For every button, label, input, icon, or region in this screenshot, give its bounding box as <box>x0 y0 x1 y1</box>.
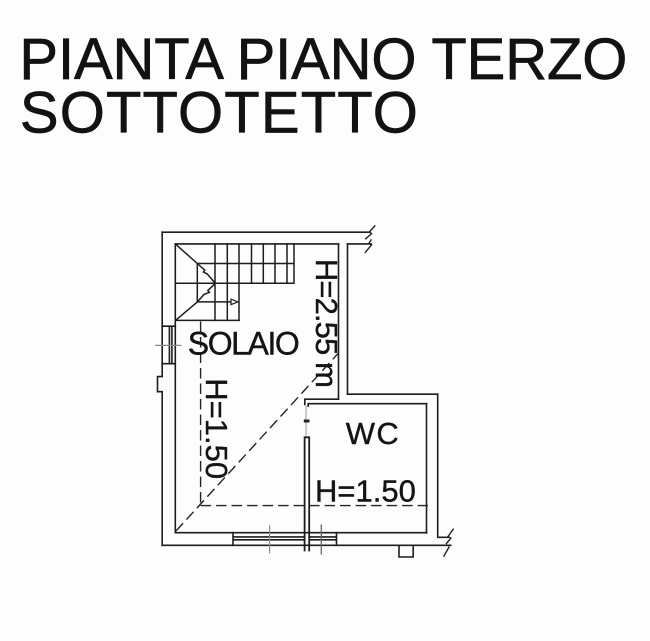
svg-text:WC: WC <box>346 416 399 451</box>
svg-text:H=1.50: H=1.50 <box>199 378 234 479</box>
svg-text:H=2.55 m: H=2.55 m <box>309 259 344 388</box>
svg-text:SOLAIO: SOLAIO <box>188 326 300 362</box>
svg-text:SOTTOTETTO: SOTTOTETTO <box>20 81 418 146</box>
svg-text:H=1.50: H=1.50 <box>315 473 416 508</box>
